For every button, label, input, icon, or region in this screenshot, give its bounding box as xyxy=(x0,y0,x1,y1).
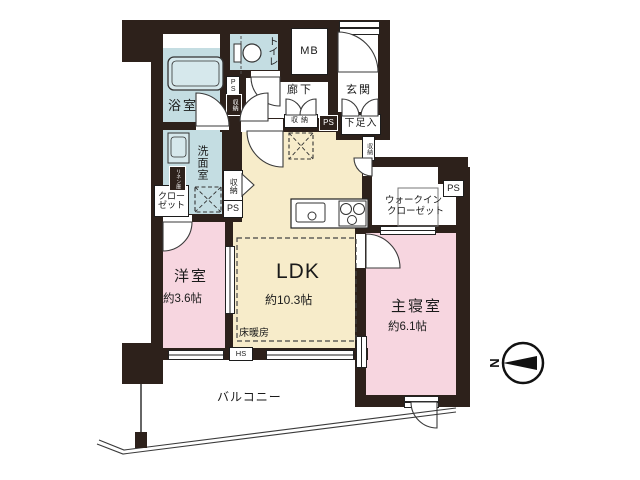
toilet-label: トイレ xyxy=(264,36,279,66)
floor-plan: MB 下足入 PS 収納 PS 収納 収納 PS 収納 PS クロー ゼット H… xyxy=(0,0,640,480)
wall-segment xyxy=(122,343,163,384)
door-swing xyxy=(286,99,302,115)
meter-box: MB xyxy=(291,28,328,75)
door-opening xyxy=(251,71,280,78)
balcony-window xyxy=(168,350,224,360)
pipe-space-box: PS xyxy=(443,180,464,197)
bath-label: 浴室 xyxy=(168,95,198,114)
door-opening xyxy=(241,119,283,132)
balcony-window xyxy=(266,350,354,360)
bath-upper-strip xyxy=(162,34,220,48)
entrance-door-opening xyxy=(339,21,380,35)
bedroom-balcony-door-opening xyxy=(404,396,439,408)
balcony-label: バルコニー xyxy=(217,388,282,405)
washroom-label: 洗面室 xyxy=(194,145,210,181)
closet-label-line2: ゼット xyxy=(158,201,185,210)
pipe-space-box: PS xyxy=(223,200,243,218)
storage-box: 収納 xyxy=(284,114,318,128)
sliding-door xyxy=(225,246,235,314)
master-bedroom-label: 主寝室 xyxy=(391,295,442,316)
door-opening xyxy=(196,123,229,130)
door-opening xyxy=(356,234,365,268)
floor-heating-label: 床暖房 xyxy=(239,324,269,339)
pipe-space-box: PS xyxy=(226,76,240,95)
ldk-size: 約10.3帖 xyxy=(265,291,312,308)
pipe-space-box: PS xyxy=(319,115,338,131)
storage-box: 収納 xyxy=(223,170,243,201)
storage-box: 収納 xyxy=(362,136,375,161)
ldk-label: LDK xyxy=(276,260,320,284)
entrance-door-swing xyxy=(338,32,378,72)
shoe-box: 下足入 xyxy=(341,114,381,135)
door-swing xyxy=(251,77,280,106)
bedroom-window xyxy=(356,336,367,368)
compass-north-label: N xyxy=(487,358,502,367)
compass-icon: N xyxy=(487,343,543,383)
wall-segment xyxy=(456,167,470,407)
wic-label-line2: クローゼット xyxy=(387,203,444,217)
wic-sliding-door xyxy=(380,226,436,235)
storage-box: 収納 xyxy=(226,94,242,116)
hs-box: HS xyxy=(229,347,253,361)
linen-box: リネン庫 xyxy=(169,166,186,191)
entrance-label: 玄関 xyxy=(346,81,372,97)
western-room-size: 約3.6帖 xyxy=(163,290,202,306)
hallway-label: 廊下 xyxy=(287,81,313,97)
master-bedroom-size: 約6.1帖 xyxy=(388,318,427,334)
room-ldk xyxy=(233,130,363,352)
western-room-label: 洋室 xyxy=(174,265,208,286)
door-swing xyxy=(300,99,316,115)
